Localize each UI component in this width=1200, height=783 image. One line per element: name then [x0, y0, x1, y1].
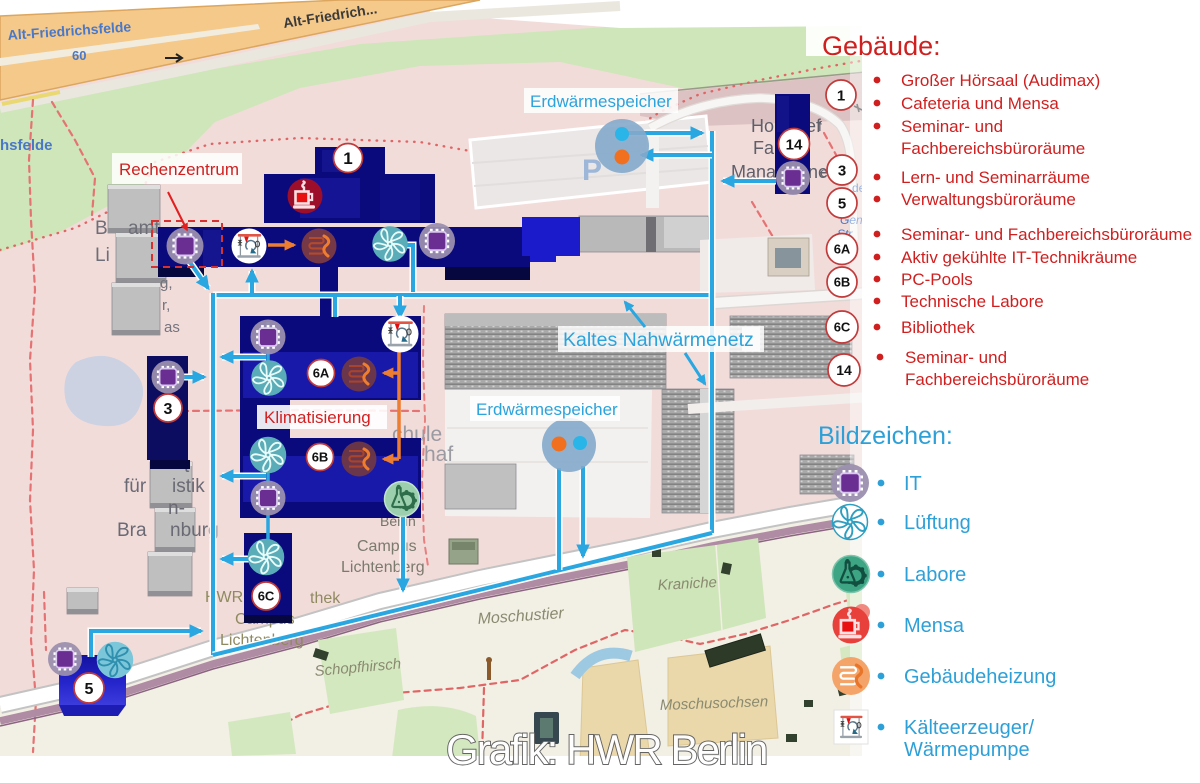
svg-text:n-: n-	[168, 498, 185, 519]
svg-text:Verwaltungsbüroräume: Verwaltungsbüroräume	[901, 190, 1076, 209]
svg-text:Gebäude:: Gebäude:	[822, 31, 941, 61]
svg-text:f: f	[818, 118, 822, 134]
svg-text:Erdwärmespeicher: Erdwärmespeicher	[476, 400, 618, 419]
svg-text:3: 3	[838, 162, 846, 179]
svg-text:r,: r,	[162, 297, 170, 314]
svg-text:Kaltes Nahwärmenetz: Kaltes Nahwärmenetz	[563, 329, 754, 351]
svg-text:Campus: Campus	[357, 538, 417, 555]
svg-text:Fachbereichsbüroräume: Fachbereichsbüroräume	[905, 370, 1089, 389]
svg-text:Erdwärmespeicher: Erdwärmespeicher	[530, 92, 672, 111]
svg-text:istik: istik	[172, 476, 205, 497]
svg-text:6A: 6A	[313, 366, 330, 381]
svg-text:Grafik: HWR Berlin: Grafik: HWR Berlin	[446, 726, 767, 773]
svg-text:Bra: Bra	[117, 520, 147, 541]
svg-text:Bildzeichen:: Bildzeichen:	[818, 422, 953, 450]
svg-text:Klimatisierung: Klimatisierung	[264, 408, 371, 427]
svg-text:6C: 6C	[258, 589, 275, 604]
svg-text:Wärmepumpe: Wärmepumpe	[904, 739, 1030, 761]
svg-text:Fachbereichsbüroräume: Fachbereichsbüroräume	[901, 139, 1085, 158]
svg-text:hsfelde: hsfelde	[0, 137, 53, 154]
svg-text:Rechenzentrum: Rechenzentrum	[119, 160, 239, 179]
svg-text:6A: 6A	[834, 242, 851, 257]
svg-text:14: 14	[836, 362, 852, 378]
svg-text:Seminar- und Fachbereichsbüror: Seminar- und Fachbereichsbüroräume	[901, 225, 1192, 244]
svg-text:6B: 6B	[834, 275, 851, 290]
svg-text:Lichtenberg: Lichtenberg	[341, 559, 425, 576]
svg-text:1: 1	[837, 87, 845, 104]
svg-text:14: 14	[786, 136, 803, 153]
svg-text:PC-Pools: PC-Pools	[901, 270, 973, 289]
svg-text:Seminar- und: Seminar- und	[901, 117, 1003, 136]
svg-text:Fa: Fa	[753, 138, 775, 158]
svg-text:6C: 6C	[834, 320, 851, 335]
svg-text:Labore: Labore	[904, 564, 966, 586]
svg-text:thek: thek	[310, 590, 341, 607]
svg-text:Gebäudeheizung: Gebäudeheizung	[904, 666, 1056, 688]
svg-text:B: B	[95, 218, 108, 239]
svg-text:Lüftung: Lüftung	[904, 512, 971, 534]
svg-text:g,: g,	[160, 275, 173, 292]
svg-text:Bibliothek: Bibliothek	[901, 318, 975, 337]
svg-text:Ho: Ho	[751, 116, 774, 136]
svg-text:5: 5	[85, 681, 94, 698]
svg-text:Lern- und Seminarräume: Lern- und Seminarräume	[901, 168, 1090, 187]
svg-text:für: für	[124, 476, 147, 497]
svg-text:Technische Labore: Technische Labore	[901, 292, 1044, 311]
svg-text:Seminar- und: Seminar- und	[905, 348, 1007, 367]
svg-text:Kraniche: Kraniche	[657, 574, 717, 594]
svg-text:3: 3	[164, 401, 173, 418]
svg-text:Mensa: Mensa	[904, 615, 965, 637]
svg-text:IT: IT	[904, 473, 922, 495]
svg-text:Li: Li	[95, 245, 110, 266]
svg-text:5: 5	[838, 195, 846, 212]
svg-text:Cafeteria und Mensa: Cafeteria und Mensa	[901, 94, 1059, 113]
svg-text:Aktiv gekühlte IT-Technikräume: Aktiv gekühlte IT-Technikräume	[901, 248, 1137, 267]
svg-text:60: 60	[72, 48, 86, 63]
svg-text:haf: haf	[424, 443, 453, 466]
svg-text:Kälteerzeuger/: Kälteerzeuger/	[904, 717, 1035, 739]
svg-text:1: 1	[343, 149, 352, 168]
svg-text:Großer Hörsaal (Audimax): Großer Hörsaal (Audimax)	[901, 71, 1100, 90]
svg-text:6B: 6B	[312, 450, 329, 465]
svg-text:as: as	[164, 319, 180, 336]
